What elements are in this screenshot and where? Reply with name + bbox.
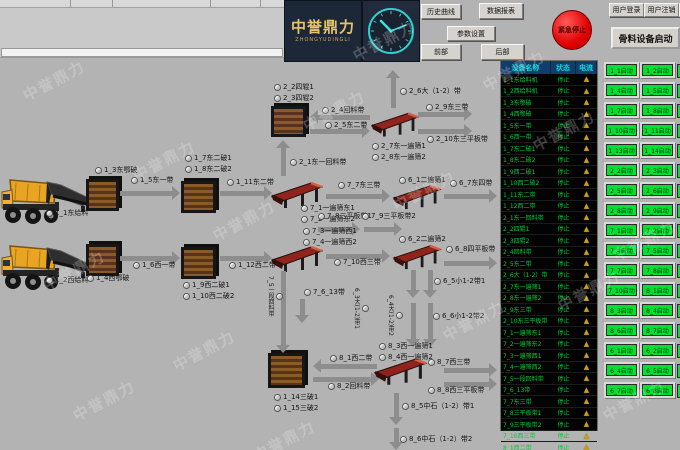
status-indicator-dot	[46, 277, 53, 284]
equipment-label-text: 1_12西二带	[238, 261, 276, 269]
table-row[interactable]: 7_3一遍筛西1停止▲	[501, 350, 597, 362]
device-status: 停止	[551, 224, 576, 233]
equipment-label-text: 6_5小1-2带1	[443, 277, 485, 285]
device-status: 停止	[551, 236, 576, 245]
equipment-label: 7_4一遍筛西2	[303, 238, 357, 246]
equipment-label: 7_3一遍筛西1	[303, 227, 357, 235]
equipment-label-text: 1_2西给料	[55, 276, 88, 284]
conveyor-arrow-head	[371, 372, 379, 386]
status-indicator-dot	[276, 293, 283, 300]
table-row[interactable]: 7_6_13带停止▲	[501, 385, 597, 397]
conveyor-arrow-head	[276, 345, 290, 353]
start-button[interactable]: 1_10启动	[606, 124, 637, 136]
table-row[interactable]: 2_2四辊1停止▲	[501, 224, 597, 236]
table-row[interactable]: 1_8东二破2停止▲	[501, 155, 597, 167]
equipment-label: 7_9三平板带2	[362, 212, 416, 220]
equipment-label: 7_10西三带	[334, 258, 381, 266]
device-name: 1_3东鄂破	[501, 98, 551, 107]
status-indicator-dot	[426, 104, 433, 111]
current-gauge-icon: ▲	[576, 317, 597, 325]
status-indicator-dot	[450, 180, 457, 187]
status-indicator-dot	[428, 387, 435, 394]
equipment-label-text: 6_6小1-2带2	[442, 312, 484, 320]
conveyor-arrow-head	[264, 186, 272, 200]
equipment-label: 6_3大(1-2)带1	[352, 288, 369, 329]
rear-section-button[interactable]: 后部	[481, 44, 524, 60]
device-name: 2_10东三平板带	[501, 316, 551, 325]
equipment-label-text: 2_9东三带	[435, 103, 468, 111]
screen-node[interactable]	[391, 244, 443, 270]
table-row[interactable]: 1_12西二带停止▲	[501, 201, 597, 213]
table-row[interactable]: 2_6大（1-2）带停止▲	[501, 270, 597, 282]
device-name: 2_1东一回料带	[501, 213, 551, 222]
device-name: 7_8三平板带1	[501, 408, 551, 417]
status-indicator-dot	[334, 259, 341, 266]
table-row[interactable]: 2_8东一遍筛2停止▲	[501, 293, 597, 305]
equipment-label-text: 6_4大(1-2)带2	[386, 295, 394, 336]
status-indicator-dot	[428, 359, 435, 366]
equipment-label: 1_15三破2	[274, 404, 318, 412]
equipment-label: 8_4西一遍筛2	[379, 353, 433, 361]
current-gauge-icon: ▲	[576, 305, 597, 313]
conveyor-arrow	[364, 227, 394, 232]
equipment-label-text: 1_4西鄂破	[96, 274, 129, 282]
col-status: 状态	[551, 61, 576, 74]
current-gauge-icon: ▲	[576, 432, 597, 440]
start-button[interactable]: 1_2启动	[642, 64, 673, 76]
status-indicator-dot	[362, 305, 369, 312]
table-row[interactable]: 7_2一遍筛东2停止▲	[501, 339, 597, 351]
current-gauge-icon: ▲	[576, 374, 597, 382]
device-status: 停止	[551, 109, 576, 118]
table-row[interactable]: 2_10东三平板带停止▲	[501, 316, 597, 328]
equipment-label-text: 2_5东二带	[334, 121, 367, 129]
start-button[interactable]: 7_7启动	[606, 264, 637, 276]
start-button[interactable]: 7_8启动	[642, 264, 673, 276]
screen-node[interactable]	[371, 111, 419, 138]
start-button[interactable]: 8_7启动	[642, 324, 673, 336]
current-gauge-icon: ▲	[576, 87, 597, 95]
equipment-label-text: 7_1一遍筛东1	[310, 204, 355, 212]
status-indicator-dot	[274, 394, 281, 401]
user-login-button[interactable]: 用户登录	[609, 3, 644, 17]
conveyor-arrow-head	[423, 290, 437, 298]
start-button[interactable]: 2_2启动	[606, 164, 637, 176]
start-button[interactable]: 6_4启动	[606, 364, 637, 376]
equipment-label: 1_5东一带	[131, 176, 173, 184]
current-gauge-icon: ▲	[576, 259, 597, 267]
equipment-label-text: 2_4回料带	[331, 106, 364, 114]
conveyor-arrow	[418, 112, 464, 117]
current-gauge-icon: ▲	[576, 133, 597, 141]
table-row[interactable]: 1_7东二破1停止▲	[501, 143, 597, 155]
equipment-label: 6_2二遍筛2	[399, 235, 446, 243]
emergency-stop-label: 紧急停止	[558, 25, 586, 35]
equipment-label: 1_2西给料	[46, 276, 88, 284]
table-row[interactable]: 7_10西三带停止▲	[501, 431, 597, 443]
equipment-label-text: 2_10东三平板带	[436, 135, 488, 143]
equipment-label: 8_2回料带	[328, 382, 370, 390]
start-button[interactable]: 7_5启动	[642, 244, 673, 256]
table-row[interactable]: 1_4西鄂破停止▲	[501, 109, 597, 121]
start-button[interactable]: 1_4启动	[606, 84, 637, 96]
table-row[interactable]: 1_2西给料机停止▲	[501, 86, 597, 98]
current-gauge-icon: ▲	[576, 225, 597, 233]
start-button[interactable]: 1_13启动	[606, 144, 637, 156]
equipment-label: 8_6中石（1-2）带2	[400, 435, 472, 443]
start-button[interactable]: 6_1启动	[606, 344, 637, 356]
equipment-label: 6_1二遍筛1	[399, 176, 446, 184]
equipment-label: 7_7东三带	[338, 181, 380, 189]
current-gauge-icon: ▲	[576, 213, 597, 221]
equipment-label: 7_5一段回料带	[266, 276, 283, 317]
table-row[interactable]: 8_1西二带停止▲	[501, 442, 597, 450]
history-curve-button[interactable]: 历史曲线	[421, 4, 461, 19]
table-row[interactable]: 1_1东给料机停止▲	[501, 74, 597, 86]
current-gauge-icon: ▲	[576, 282, 597, 290]
hmi-screen: 1_1东给料1_2西给料1_3东鄂破1_4西鄂破1_5东一带1_6西一带1_7东…	[0, 0, 680, 450]
current-gauge-icon: ▲	[576, 156, 597, 164]
table-row[interactable]: 2_3四辊2停止▲	[501, 235, 597, 247]
equipment-label: 1_4西鄂破	[87, 274, 129, 282]
table-row[interactable]: 2_9东三带停止▲	[501, 304, 597, 316]
equipment-label-text: 7_9三平板带2	[371, 212, 416, 220]
device-status: 停止	[551, 374, 576, 383]
device-status: 停止	[551, 75, 576, 84]
device-name: 7_1一遍筛东1	[501, 328, 551, 337]
start-button[interactable]: 8_3启动	[606, 304, 637, 316]
start-button[interactable]: 7_4启动	[606, 244, 637, 256]
start-button[interactable]: 1_5启动	[642, 84, 673, 96]
equipment-label-text: 1_8东二破2	[194, 165, 232, 173]
status-indicator-dot	[446, 246, 453, 253]
equipment-label: 1_11东二带	[227, 178, 274, 186]
status-indicator-dot	[399, 177, 406, 184]
device-status: 停止	[551, 408, 576, 417]
status-indicator-dot	[322, 107, 329, 114]
equipment-label: 2_6大（1-2）带	[400, 87, 461, 95]
conveyor-arrow-head	[489, 363, 497, 377]
device-status: 停止	[551, 247, 576, 256]
device-status: 停止	[551, 316, 576, 325]
device-name: 1_1东给料机	[501, 75, 551, 84]
device-status: 停止	[551, 293, 576, 302]
device-status: 停止	[551, 362, 576, 371]
table-row[interactable]: 2_4回料带停止▲	[501, 247, 597, 259]
table-row[interactable]: 7_4一遍筛西2停止▲	[501, 362, 597, 374]
equipment-label: 8_8西三平板带	[428, 386, 484, 394]
device-status: 停止	[551, 213, 576, 222]
start-button[interactable]: 1_14启动	[642, 144, 673, 156]
current-gauge-icon: ▲	[576, 98, 597, 106]
current-gauge-icon: ▲	[576, 190, 597, 198]
equipment-label: 6_7东四带	[450, 179, 492, 187]
data-report-button[interactable]: 数据报表	[479, 3, 523, 19]
equipment-label: 2_8东一遍筛2	[372, 153, 426, 161]
device-status: 停止	[551, 121, 576, 130]
status-indicator-dot	[183, 282, 190, 289]
current-gauge-icon: ▲	[576, 420, 597, 428]
status-indicator-dot	[338, 182, 345, 189]
conveyor-arrow-head	[310, 110, 318, 124]
conveyor-arrow	[411, 303, 416, 339]
emergency-stop-button[interactable]: 紧急停止	[552, 10, 592, 50]
parameter-settings-button[interactable]: 参数设置	[447, 26, 495, 41]
conveyor-arrow-head	[394, 222, 402, 236]
conveyor-arrow-head	[172, 186, 180, 200]
device-status: 停止	[551, 86, 576, 95]
conveyor-arrow-head	[489, 256, 497, 270]
table-row[interactable]: 1_3东鄂破停止▲	[501, 97, 597, 109]
equipment-label: 1_12西二带	[229, 261, 276, 269]
device-status: 停止	[551, 431, 576, 440]
device-name: 1_8东二破2	[501, 155, 551, 164]
status-indicator-dot	[301, 216, 308, 223]
equipment-label-text: 8_7西三带	[437, 358, 470, 366]
device-name: 7_3一遍筛西1	[501, 351, 551, 360]
start-button[interactable]: 7_1启动	[606, 224, 637, 236]
equipment-label: 8_5中石（1-2）带1	[402, 402, 474, 410]
status-indicator-dot	[318, 213, 325, 220]
status-indicator-dot	[402, 403, 409, 410]
table-row[interactable]: 1_9西二破1停止▲	[501, 166, 597, 178]
start-button[interactable]: 1_11启动	[642, 124, 673, 136]
equipment-label: 8_1西二带	[330, 354, 372, 362]
start-button[interactable]: 8_1启动	[642, 284, 673, 296]
device-name: 2_7东一遍筛1	[501, 282, 551, 291]
conveyor-arrow	[220, 191, 264, 196]
alarm-panel	[0, 0, 285, 58]
table-row[interactable]: 7_9三平板带2停止▲	[501, 419, 597, 431]
status-indicator-dot	[396, 312, 403, 319]
table-row[interactable]: 2_5东二带停止▲	[501, 258, 597, 270]
table-row[interactable]: 1_5东一带停止▲	[501, 120, 597, 132]
equipment-label: 7_6_13带	[304, 288, 345, 296]
device-status: 停止	[551, 155, 576, 164]
conveyor-arrow-head	[389, 417, 403, 425]
device-status: 停止	[551, 443, 576, 450]
current-gauge-icon: ▲	[576, 75, 597, 83]
device-status: 停止	[551, 397, 576, 406]
current-gauge-icon: ▲	[576, 271, 597, 279]
equipment-label: 1_6西一带	[133, 261, 175, 269]
equipment-label-text: 1_6西一带	[142, 261, 175, 269]
conveyor-arrow	[444, 194, 489, 199]
equipment-label: 2_4回料带	[322, 106, 364, 114]
table-row[interactable]: 1_6西一带停止▲	[501, 132, 597, 144]
equipment-label-text: 8_2回料带	[337, 382, 370, 390]
status-indicator-dot	[433, 313, 440, 320]
status-indicator-dot	[427, 136, 434, 143]
crusher-node[interactable]	[268, 353, 305, 388]
alarm-entry-row[interactable]	[1, 48, 283, 57]
screen-node[interactable]	[374, 357, 427, 386]
screen-node[interactable]	[271, 245, 323, 273]
status-indicator-dot	[400, 436, 407, 443]
start-button[interactable]: 2_9启动	[642, 204, 673, 216]
col-device-name: 设备名称	[501, 61, 551, 74]
start-button[interactable]: 6_7启动	[606, 384, 637, 396]
conveyor-arrow	[428, 303, 433, 339]
equipment-label-text: 6_3大(1-2)带1	[352, 288, 360, 329]
start-button[interactable]: 2_6启动	[642, 184, 673, 196]
equipment-label: 2_7东一遍筛1	[372, 142, 426, 150]
start-button[interactable]: 8_6启动	[606, 324, 637, 336]
current-gauge-icon: ▲	[576, 397, 597, 405]
conveyor-arrow	[310, 129, 362, 134]
equipment-label: 2_5东二带	[325, 121, 367, 129]
table-row[interactable]: 7_1一遍筛东1停止▲	[501, 327, 597, 339]
table-row[interactable]: 1_11东二带停止▲	[501, 189, 597, 201]
current-gauge-icon: ▲	[576, 144, 597, 152]
front-section-button[interactable]: 前部	[421, 44, 461, 60]
conveyor-arrow-head	[382, 189, 390, 203]
conveyor-arrow-head	[406, 290, 420, 298]
device-name: 1_12西二带	[501, 201, 551, 210]
equipment-label: 8_3西一遍筛1	[379, 342, 433, 350]
status-indicator-dot	[183, 293, 190, 300]
start-button[interactable]: 6_8启动	[642, 384, 673, 396]
start-button[interactable]: 6_2启动	[642, 344, 673, 356]
equipment-label: 6_8四平板带	[446, 245, 495, 253]
status-indicator-dot	[131, 177, 138, 184]
conveyor-arrow	[120, 191, 172, 196]
equipment-label-text: 6_8四平板带	[455, 245, 495, 253]
start-button[interactable]: 2_8启动	[606, 204, 637, 216]
device-status: 停止	[551, 385, 576, 394]
equipment-label-text: 7_10西三带	[343, 258, 381, 266]
start-button[interactable]: 1_7启动	[606, 104, 637, 116]
conveyor-arrow	[444, 261, 489, 266]
start-button[interactable]: 7_2启动	[642, 224, 673, 236]
equipment-label: 2_10东三平板带	[427, 135, 488, 143]
current-gauge-icon: ▲	[576, 328, 597, 336]
device-name: 7_6_13带	[501, 385, 551, 394]
current-gauge-icon: ▲	[576, 443, 597, 450]
device-name: 1_4西鄂破	[501, 109, 551, 118]
status-indicator-dot	[303, 239, 310, 246]
equipment-label-text: 2_2四辊1	[283, 83, 314, 91]
equipment-label: 8_7西三带	[428, 358, 470, 366]
conveyor-arrow	[326, 194, 382, 199]
device-name: 2_8东一遍筛2	[501, 293, 551, 302]
conveyor-arrow	[411, 270, 416, 290]
status-indicator-dot	[328, 383, 335, 390]
table-row[interactable]: 2_7东一遍筛1停止▲	[501, 281, 597, 293]
equipment-label-text: 1_9西二破1	[192, 281, 230, 289]
equipment-label-text: 1_10西二破2	[192, 292, 234, 300]
device-name: 7_5一段回料带	[501, 374, 551, 383]
device-name: 7_10西三带	[501, 431, 551, 440]
device-name: 1_6西一带	[501, 132, 551, 141]
equipment-label: 2_1东一回料带	[290, 158, 346, 166]
equipment-label-text: 2_1东一回料带	[299, 158, 346, 166]
logo-text: 中誉鼎力	[291, 19, 355, 35]
start-button[interactable]: 6_5启动	[642, 364, 673, 376]
status-indicator-dot	[372, 143, 379, 150]
equipment-label: 1_3东鄂破	[95, 166, 137, 174]
status-indicator-dot	[274, 405, 281, 412]
screen-node[interactable]	[391, 184, 443, 210]
conveyor-arrow	[391, 78, 396, 108]
equipment-label-text: 8_4西一遍筛2	[388, 353, 433, 361]
status-table-header: 设备名称 状态 电流	[501, 61, 597, 74]
table-row[interactable]: 7_8三平板带1停止▲	[501, 408, 597, 420]
device-name: 7_9三平板带2	[501, 420, 551, 429]
device-status: 停止	[551, 190, 576, 199]
device-name: 2_3四辊2	[501, 236, 551, 245]
device-status: 停止	[551, 259, 576, 268]
device-name: 1_2西给料机	[501, 86, 551, 95]
equipment-label-text: 8_6中石（1-2）带2	[409, 435, 472, 443]
start-button[interactable]: 2_3启动	[642, 164, 673, 176]
crusher-node[interactable]	[181, 247, 216, 279]
current-gauge-icon: ▲	[576, 386, 597, 394]
start-button[interactable]: 1_1启动	[606, 64, 637, 76]
start-button[interactable]: 7_10启动	[606, 284, 637, 296]
crusher-node[interactable]	[86, 244, 119, 276]
equipment-label-text: 1_3东鄂破	[104, 166, 137, 174]
device-status: 停止	[551, 132, 576, 141]
table-row[interactable]: 1_10西二破2停止▲	[501, 178, 597, 190]
status-indicator-dot	[400, 88, 407, 95]
device-status: 停止	[551, 201, 576, 210]
equipment-label: 2_2四辊1	[274, 83, 314, 91]
clock-icon	[363, 2, 419, 60]
equipment-label-text: 2_7东一遍筛1	[381, 142, 426, 150]
status-indicator-dot	[185, 166, 192, 173]
equipment-label: 6_6小1-2带2	[433, 312, 484, 320]
current-gauge-icon: ▲	[576, 110, 597, 118]
equipment-label-text: 2_3四辊2	[283, 94, 314, 102]
equipment-status-table: 设备名称 状态 电流 1_1东给料机停止▲1_2西给料机停止▲1_3东鄂破停止▲…	[500, 60, 598, 431]
user-logout-button[interactable]: 用户注销	[644, 3, 679, 17]
current-gauge-icon: ▲	[576, 363, 597, 371]
device-name: 1_10西二破2	[501, 178, 551, 187]
equipment-label: 2_9东三带	[426, 103, 468, 111]
device-status: 停止	[551, 420, 576, 429]
device-name: 2_4回料带	[501, 247, 551, 256]
equipment-label-text: 1_15三破2	[283, 404, 318, 412]
table-row[interactable]: 7_7东三带停止▲	[501, 396, 597, 408]
status-indicator-dot	[325, 122, 332, 129]
device-name: 7_4一遍筛西2	[501, 362, 551, 371]
table-row[interactable]: 2_1东一回料带停止▲	[501, 212, 597, 224]
start-button[interactable]: 2_5启动	[606, 184, 637, 196]
start-button[interactable]: 8_4启动	[642, 304, 673, 316]
equipment-label-text: 7_6_13带	[313, 288, 345, 296]
equipment-label-text: 7_4一遍筛西2	[312, 238, 357, 246]
crusher-node[interactable]	[181, 181, 216, 213]
current-gauge-icon: ▲	[576, 202, 597, 210]
current-gauge-icon: ▲	[576, 167, 597, 175]
conveyor-arrow-head	[382, 249, 390, 263]
crusher-node[interactable]	[86, 179, 119, 211]
equipment-label-text: 6_2二遍筛2	[408, 235, 446, 243]
current-gauge-icon: ▲	[576, 179, 597, 187]
start-button[interactable]: 1_8启动	[642, 104, 673, 116]
device-name: 7_2一遍筛东2	[501, 339, 551, 348]
device-status: 停止	[551, 351, 576, 360]
equipment-label-text: 7_7东三带	[347, 181, 380, 189]
device-name: 1_5东一带	[501, 121, 551, 130]
status-indicator-dot	[434, 278, 441, 285]
current-gauge-icon: ▲	[576, 121, 597, 129]
conveyor-arrow	[318, 115, 370, 120]
table-row[interactable]: 7_5一段回料带停止▲	[501, 373, 597, 385]
crusher-node[interactable]	[271, 106, 306, 137]
device-status: 停止	[551, 282, 576, 291]
